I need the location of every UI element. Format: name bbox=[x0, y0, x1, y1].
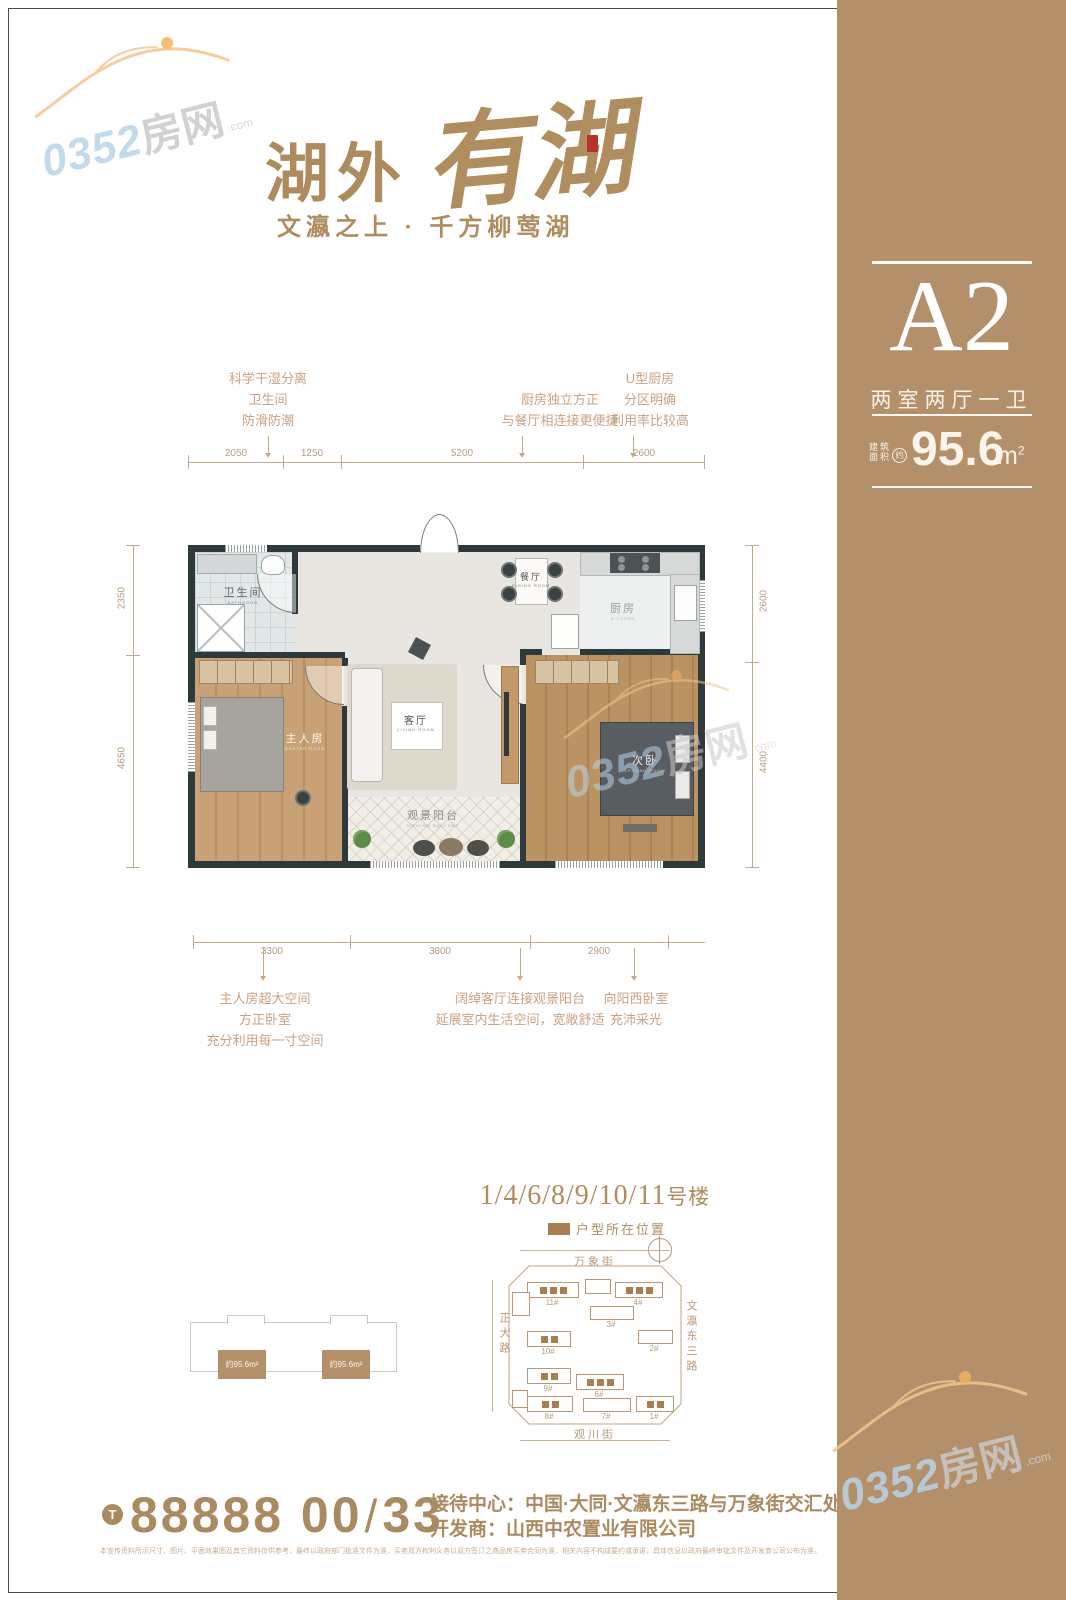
arrow-icon bbox=[519, 453, 525, 458]
callout-living: 阔绰客厅连接观景阳台延展室内生活空间，宽敞舒适 bbox=[435, 988, 604, 1030]
street-line bbox=[492, 1280, 493, 1412]
dim-label: 2050 bbox=[225, 448, 247, 459]
stone bbox=[467, 840, 489, 856]
phone-number: 88888 00/33 bbox=[130, 1486, 444, 1544]
dim-label: 2600 bbox=[759, 590, 770, 612]
area-approx-badge: 约 bbox=[892, 448, 907, 463]
area-value: 95.6 bbox=[911, 422, 1004, 477]
plant bbox=[497, 830, 515, 848]
unit-block: 约95.6m² bbox=[218, 1350, 266, 1379]
tv bbox=[504, 692, 509, 756]
dim-label: 1250 bbox=[301, 448, 323, 459]
building-label: 3# bbox=[607, 1320, 616, 1329]
site-building bbox=[527, 1368, 571, 1384]
site-building bbox=[585, 1279, 611, 1294]
site-building bbox=[615, 1282, 663, 1298]
dim-label: 2350 bbox=[117, 587, 128, 609]
building-label: 1# bbox=[650, 1412, 659, 1421]
dimension-line-left bbox=[133, 545, 134, 868]
room-label-master: 主人房MASTER ROOM bbox=[284, 730, 325, 751]
site-building bbox=[527, 1396, 573, 1412]
tick bbox=[745, 867, 759, 868]
reception-address: 中国·大同·文瀛东三路与万象街交汇处 bbox=[525, 1494, 842, 1515]
callout-master: 主人房超大空间方正卧室充分利用每一寸空间 bbox=[206, 988, 323, 1051]
room-label-bathroom: 卫生间BATHROOM bbox=[224, 584, 263, 605]
dim-label: 5200 bbox=[451, 448, 473, 459]
logo-text-script: 有湖 bbox=[417, 62, 637, 231]
tick bbox=[350, 935, 351, 949]
arrow-icon bbox=[265, 453, 271, 458]
street-name-left: 正大路 bbox=[496, 1312, 512, 1357]
callout-kitchen-dining: 厨房独立方正与餐厅相连接更便捷 bbox=[501, 389, 618, 431]
toilet bbox=[261, 555, 285, 575]
divider bbox=[872, 486, 1032, 488]
tick bbox=[193, 935, 194, 949]
tick bbox=[126, 655, 140, 656]
arrow-icon bbox=[517, 976, 523, 981]
callout-second-bedroom: 向阳西卧室充沛采光 bbox=[603, 988, 668, 1030]
tick bbox=[583, 455, 584, 469]
sidebar-panel: A2 两室两厅一卫 建筑面积 约 95.6 m2 bbox=[837, 0, 1066, 1600]
leader-line bbox=[520, 948, 521, 978]
unit-location-legend: 户型所在位置 bbox=[548, 1219, 666, 1238]
wardrobe bbox=[199, 660, 293, 684]
bench bbox=[623, 824, 657, 832]
logo-text-prefix: 湖外 bbox=[265, 123, 409, 215]
bedroom-chair bbox=[295, 790, 311, 806]
shower bbox=[197, 604, 245, 652]
tick bbox=[745, 545, 759, 546]
floor-sketch-notch bbox=[227, 1315, 265, 1324]
street-name-top: 万象街 bbox=[574, 1253, 616, 1269]
arrow-icon bbox=[260, 976, 266, 981]
building-label: 10# bbox=[541, 1347, 554, 1356]
tick bbox=[188, 455, 189, 469]
site-block bbox=[512, 1390, 528, 1408]
logo-seal-icon bbox=[587, 135, 598, 152]
contact-info: 接待中心：中国·大同·文瀛东三路与万象街交汇处 开发商：山西中农置业有限公司 bbox=[430, 1492, 842, 1542]
watermark-domain: .com bbox=[1024, 1449, 1053, 1469]
legend-swatch bbox=[548, 1223, 570, 1235]
reception-label: 接待中心： bbox=[430, 1494, 525, 1515]
stone bbox=[413, 840, 435, 856]
watermark-domain: .com bbox=[749, 736, 778, 756]
window bbox=[370, 861, 500, 868]
leader-line bbox=[263, 948, 264, 978]
area-label: 建筑面积 bbox=[869, 442, 891, 462]
dim-label: 3800 bbox=[429, 946, 451, 957]
site-building bbox=[576, 1374, 624, 1390]
sofa bbox=[351, 668, 383, 782]
site-block bbox=[512, 1292, 530, 1316]
street-name-bottom: 观川街 bbox=[574, 1426, 616, 1442]
street-name-right: 文瀛东三路 bbox=[683, 1300, 699, 1375]
project-logo: 湖外 有湖 文瀛之上 · 千方柳莺湖 bbox=[265, 85, 655, 240]
tick bbox=[341, 455, 342, 469]
developer-name: 山西中农置业有限公司 bbox=[506, 1519, 696, 1540]
street-line bbox=[520, 1250, 670, 1251]
room-label-kitchen: 厨房KITCHEN bbox=[610, 600, 636, 621]
unit-area: 建筑面积 约 95.6 m2 bbox=[837, 428, 1066, 480]
stove bbox=[610, 553, 660, 573]
fridge bbox=[551, 614, 579, 649]
tick bbox=[530, 935, 531, 949]
wall bbox=[520, 704, 526, 861]
building-label: 7# bbox=[602, 1412, 611, 1421]
room-label-living: 客厅LIVING ROOM bbox=[397, 712, 435, 732]
unit-block: 约95.6m² bbox=[322, 1350, 370, 1379]
callout-bathroom: 科学干湿分离卫生间防滑防潮 bbox=[229, 368, 307, 431]
dim-label: 2600 bbox=[633, 448, 655, 459]
leader-line bbox=[522, 436, 523, 454]
arrow-icon bbox=[631, 976, 637, 981]
kitchen-sink bbox=[674, 585, 697, 621]
site-building bbox=[583, 1398, 631, 1412]
building-label: 9# bbox=[544, 1384, 553, 1393]
window bbox=[555, 861, 663, 868]
dim-label: 2900 bbox=[588, 946, 610, 957]
tick bbox=[126, 867, 140, 868]
phone-icon: T bbox=[102, 1504, 123, 1525]
watermark-domain: .com bbox=[226, 115, 255, 135]
floor-sketch-notch bbox=[330, 1315, 368, 1324]
wall bbox=[195, 652, 345, 658]
plant bbox=[353, 830, 371, 848]
wall bbox=[520, 655, 526, 665]
site-building bbox=[527, 1331, 571, 1347]
site-building bbox=[638, 1330, 673, 1344]
dimension-line-top bbox=[188, 462, 705, 463]
unit-layout: 两室两厅一卫 bbox=[837, 384, 1066, 414]
master-bed bbox=[200, 697, 284, 792]
building-numbers-title: 1/4/6/8/9/10/11号楼 bbox=[400, 1180, 790, 1212]
armchair bbox=[408, 637, 431, 660]
dim-label: 4650 bbox=[117, 747, 128, 769]
leader-line bbox=[634, 948, 635, 978]
disclaimer: 本宣传资料所示尺寸、图片、平面效果图及其它资料仅供参考，最终以政府部门批准文件为… bbox=[100, 1546, 826, 1556]
dim-label: 3300 bbox=[261, 946, 283, 957]
stone bbox=[439, 838, 463, 856]
building-label: 2# bbox=[650, 1344, 659, 1353]
flyer-page: 0352房网.com 0352房网.com 0352房网.com A2 两室两厅… bbox=[0, 0, 1066, 1600]
bathroom-vanity bbox=[197, 554, 257, 574]
dimension-line-bottom bbox=[193, 942, 705, 943]
tick bbox=[668, 935, 669, 949]
tick bbox=[126, 545, 140, 546]
dining-chair bbox=[547, 586, 563, 602]
room-label-balcony: 观景阳台VIEWING BALCONY bbox=[407, 807, 460, 828]
window bbox=[188, 702, 195, 772]
building-label: 8# bbox=[545, 1412, 554, 1421]
dining-chair bbox=[501, 586, 517, 602]
divider bbox=[872, 414, 1032, 416]
callout-ushape-kitchen: U型厨房分区明确利用率比较高 bbox=[611, 368, 689, 431]
unit-code: A2 bbox=[837, 266, 1066, 368]
site-building bbox=[527, 1282, 579, 1298]
building-label: 11# bbox=[546, 1298, 559, 1307]
logo-tagline: 文瀛之上 · 千方柳莺湖 bbox=[277, 207, 574, 242]
site-building bbox=[636, 1396, 674, 1412]
area-unit: m2 bbox=[997, 442, 1025, 471]
tick bbox=[283, 455, 284, 469]
leader-line bbox=[268, 436, 269, 454]
window bbox=[225, 545, 267, 552]
tick bbox=[704, 455, 705, 469]
site-building bbox=[590, 1306, 634, 1320]
building-label: 4# bbox=[634, 1298, 643, 1307]
room-label-dining: 餐厅DINING ROOM bbox=[512, 570, 551, 588]
developer-label: 开发商： bbox=[430, 1519, 506, 1540]
